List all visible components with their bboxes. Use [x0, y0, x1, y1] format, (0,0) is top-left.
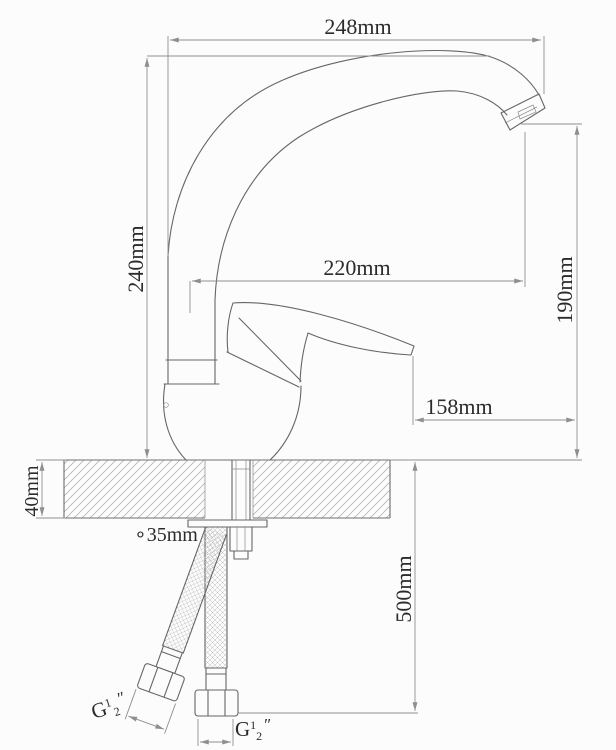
aerator-detail-line — [505, 107, 537, 123]
extension-lines — [190, 132, 525, 313]
dimension-248: 248mm — [168, 14, 544, 256]
countertop-hatch-left — [64, 460, 205, 518]
spout-inner-curve — [215, 91, 507, 362]
mounting-plate — [188, 520, 267, 527]
dim-label-158: 158mm — [425, 394, 492, 419]
shank-inner-lines — [232, 460, 250, 520]
hose-collar — [206, 668, 226, 690]
dim-label-240: 240mm — [123, 225, 148, 292]
mounting-nut — [230, 527, 252, 551]
thread-denominator: 2 — [256, 729, 262, 743]
countertop-section — [64, 460, 390, 518]
countertop-hatch-right — [253, 460, 390, 518]
thread-label-right: G12″ — [198, 715, 271, 746]
hose-hex-nut — [195, 690, 238, 716]
dim-label-220: 220mm — [323, 255, 390, 280]
body-indicator-dot — [164, 403, 169, 408]
dim-label-40: 40mm — [21, 465, 43, 517]
dim-label-248: 248mm — [324, 14, 391, 39]
drawing-svg: 248mm 240mm 220mm 190mm 158mm 40mm 500mm… — [0, 0, 616, 750]
extension-lines — [168, 36, 544, 256]
spout-collar — [164, 360, 219, 384]
dimension-158: 158mm — [413, 356, 575, 425]
thread-size-text: G12″ — [235, 715, 271, 743]
dim-label-35: ∘35mm — [134, 524, 198, 546]
thread-dim-line — [128, 716, 164, 729]
body-left-edge — [164, 384, 186, 460]
dimension-hole-diameter: ∘35mm — [134, 524, 198, 546]
faucet-technical-drawing: 248mm 240mm 220mm 190mm 158mm 40mm 500mm… — [0, 0, 616, 750]
hose-hex-nut — [137, 663, 185, 702]
dimension-40: 40mm — [21, 460, 66, 518]
dim-label-190: 190mm — [552, 256, 577, 323]
handle-lever — [233, 303, 414, 382]
spout-aerator-tip — [501, 94, 545, 130]
thread-prefix: G — [235, 717, 250, 741]
handle-skirt-lines — [227, 318, 301, 387]
handle-back-edge — [227, 303, 233, 352]
dim-label-500: 500mm — [391, 555, 416, 622]
thread-size-text: G12″ — [88, 688, 131, 726]
body-right-edge — [270, 386, 301, 460]
thread-label-left: G12″ — [88, 688, 131, 726]
shank-stub — [234, 551, 248, 559]
thread-inch-mark: ″ — [264, 715, 271, 734]
dimension-220: 220mm — [190, 132, 525, 313]
